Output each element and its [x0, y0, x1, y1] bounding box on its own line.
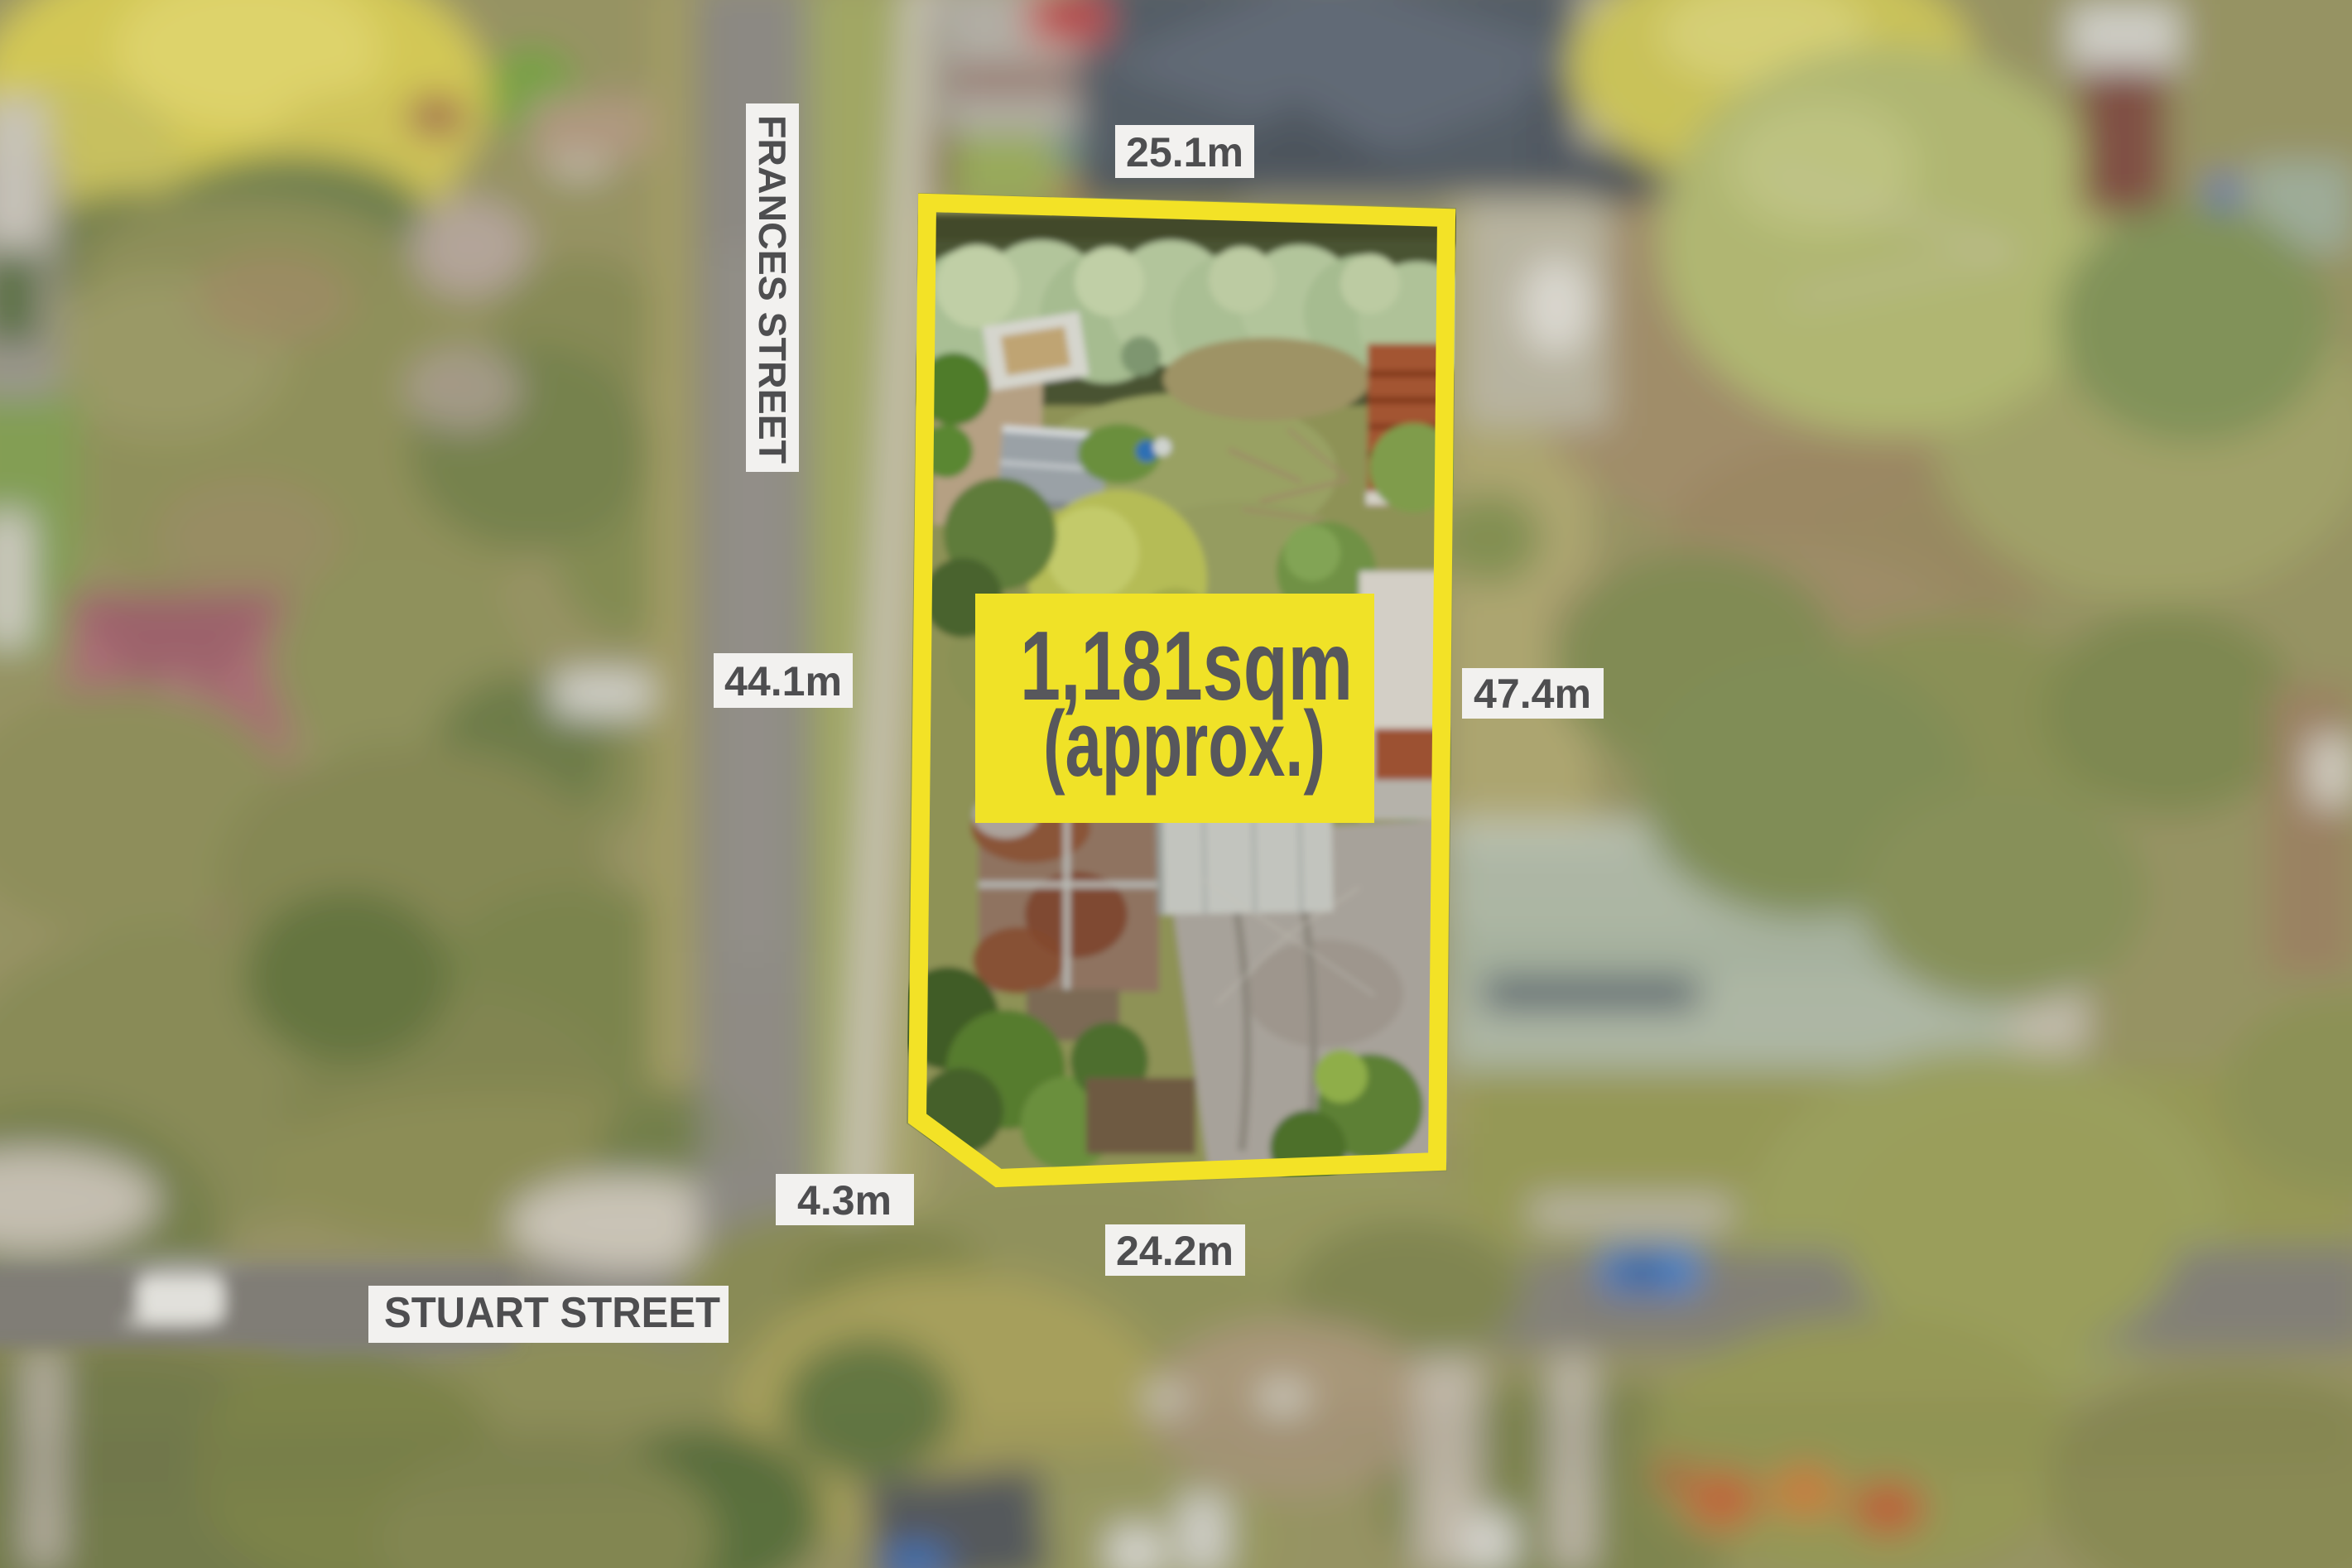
svg-text:(approx.): (approx.): [1043, 692, 1325, 796]
svg-text:25.1m: 25.1m: [1126, 129, 1243, 176]
svg-text:44.1m: 44.1m: [724, 658, 842, 705]
svg-text:FRANCES STREET: FRANCES STREET: [751, 115, 794, 464]
svg-text:47.4m: 47.4m: [1474, 671, 1591, 717]
svg-text:24.2m: 24.2m: [1116, 1228, 1234, 1274]
svg-text:4.3m: 4.3m: [797, 1177, 892, 1224]
svg-text:STUART STREET: STUART STREET: [384, 1289, 720, 1337]
